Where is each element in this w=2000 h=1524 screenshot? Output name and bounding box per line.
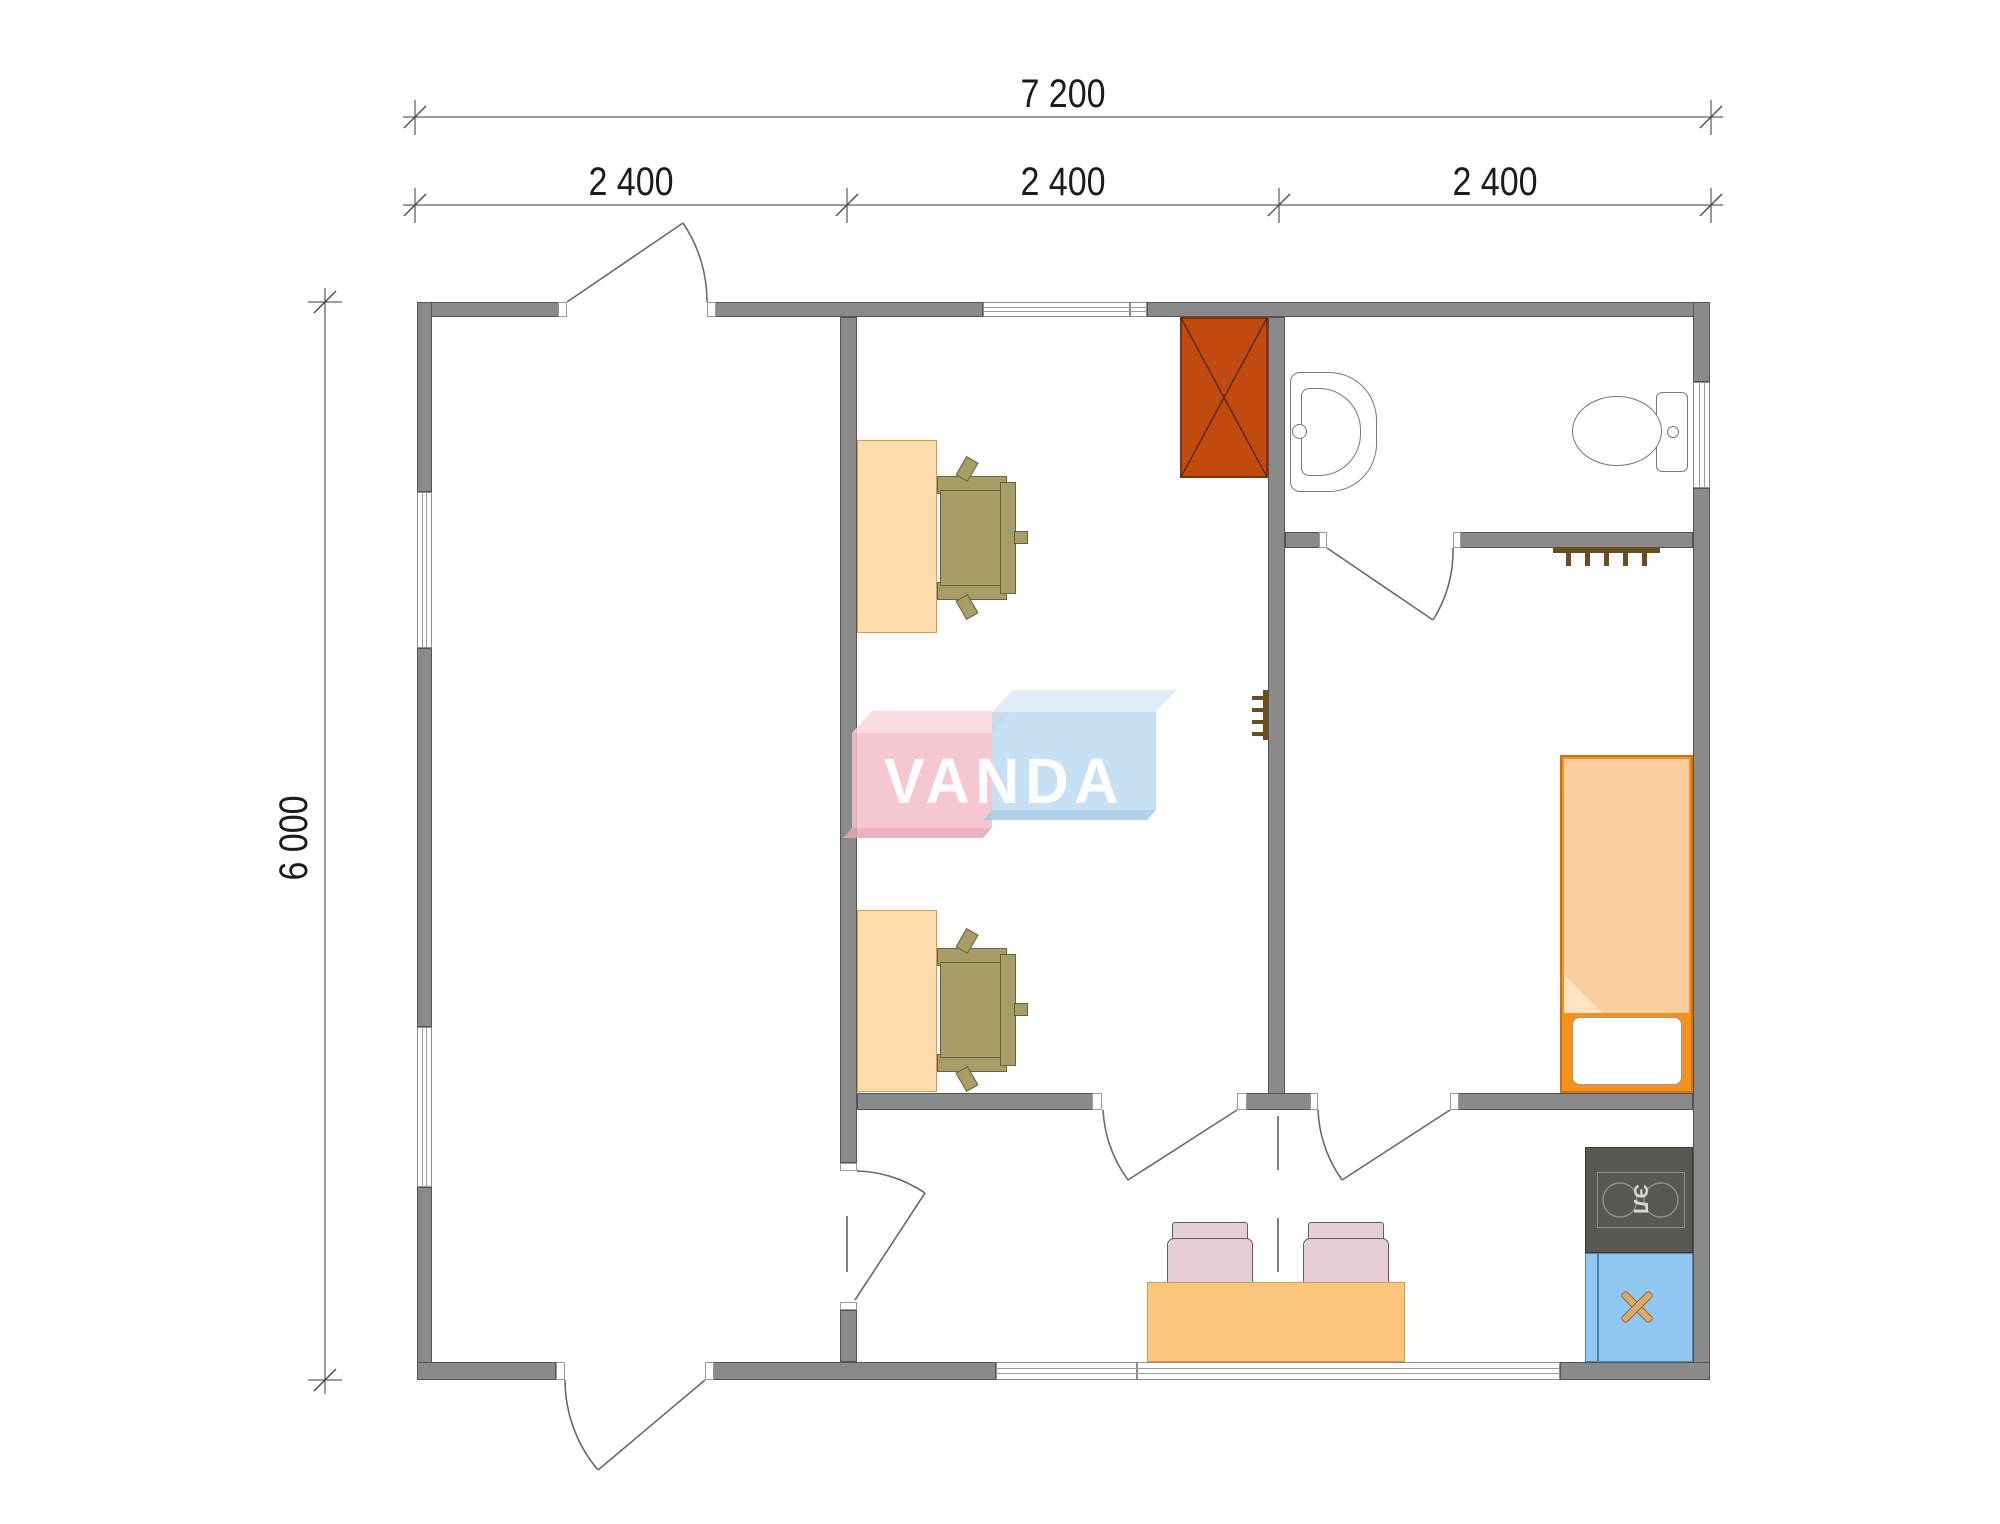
door-arc-entry-bottom (565, 1380, 598, 1470)
mid-wall-left (857, 1093, 1102, 1110)
door-jamb (558, 302, 567, 317)
bedroom-hanger-hook (1642, 553, 1647, 566)
door-arc-hall (857, 1171, 925, 1193)
dimension-label-overall-height: 6 000 (272, 753, 320, 923)
dining-table (1147, 1282, 1405, 1362)
bottom-wall-right (1560, 1362, 1710, 1380)
door-jamb (707, 302, 716, 317)
top-window-end (1130, 302, 1147, 317)
bath-wall-right (1453, 532, 1693, 548)
office-hanger-hook (1252, 720, 1263, 724)
logo-blue-top (992, 690, 1177, 712)
floor-plan-canvas: 7 200 2 400 2 400 2 400 6 000 VANDA ЭЛ (0, 0, 2000, 1524)
door-jamb (840, 1163, 857, 1171)
chair-2-leg (1014, 1003, 1028, 1016)
dining-chair-1-seat (1167, 1238, 1253, 1284)
door-leaf-bathroom (1327, 548, 1433, 620)
desk-2 (857, 910, 937, 1092)
sink-cabinet-divider (1597, 1254, 1599, 1361)
left-wall-top (417, 302, 432, 492)
right-window (1693, 382, 1710, 488)
wardrobe (1180, 317, 1268, 478)
dim-tick (404, 194, 426, 216)
dimension-label-overall-width: 7 200 (978, 72, 1148, 117)
door-leaf-entry-top (567, 223, 683, 302)
office-hanger-hook (1252, 696, 1263, 700)
door-jamb (1450, 1093, 1459, 1110)
door-jamb (705, 1362, 714, 1380)
bedroom-hanger-hook (1623, 553, 1628, 566)
chair-1-leg (1014, 531, 1028, 544)
door-leaf-entry-bottom (598, 1380, 705, 1470)
bed-pillow (1572, 1017, 1682, 1085)
door-jamb (1237, 1093, 1247, 1110)
hall-partition-stub (840, 1310, 857, 1362)
door-leaf-hall (855, 1193, 925, 1300)
bedroom-hanger-hook (1604, 553, 1609, 566)
office-hanger-hook (1252, 732, 1263, 736)
top-wall-right (1147, 302, 1710, 317)
toilet-button (1667, 426, 1679, 438)
dim-tick (1700, 106, 1722, 128)
office-hanger-hook (1252, 708, 1263, 712)
door-jamb (1453, 532, 1461, 548)
door-arc-bedroom (1318, 1110, 1342, 1180)
logo-pink-bottom (843, 828, 992, 838)
bedroom-hanger-hook (1566, 553, 1571, 566)
door-jamb (556, 1362, 565, 1380)
bedroom-partition-wall (1268, 317, 1285, 1110)
desk-1 (857, 440, 937, 633)
bottom-window-left (996, 1362, 1137, 1380)
office-hanger-bar (1263, 690, 1268, 740)
door-jamb (840, 1302, 857, 1310)
right-wall-top (1693, 302, 1710, 382)
dim-tick (314, 291, 336, 313)
top-window (983, 302, 1130, 317)
left-wall-bottom (417, 1187, 432, 1380)
dining-chair-2-seat (1303, 1238, 1389, 1284)
hall-partition-wall (840, 317, 857, 1163)
bottom-window-right (1137, 1362, 1560, 1380)
dim-tick (1700, 194, 1722, 216)
stove-electric-label: ЭЛ (1622, 1178, 1658, 1222)
door-leaf-bedroom (1342, 1110, 1450, 1180)
door-jamb (1310, 1093, 1318, 1110)
door-arc-entry-top (683, 223, 707, 302)
mid-wall-center (1237, 1093, 1318, 1110)
dim-tick (836, 194, 858, 216)
dimension-label-bay-3: 2 400 (1410, 160, 1580, 205)
top-wall-left (417, 302, 567, 317)
bottom-wall-mid (705, 1362, 996, 1380)
toilet-bowl (1572, 396, 1662, 466)
door-jamb (1092, 1093, 1102, 1110)
dimension-label-bay-2: 2 400 (978, 160, 1148, 205)
door-jamb (1319, 532, 1327, 548)
mid-wall-right (1450, 1093, 1693, 1110)
bath-sink-tap (1292, 424, 1307, 439)
left-wall-mid (417, 648, 432, 1027)
watermark-logo-text: VANDA (860, 744, 1149, 818)
dim-tick (314, 1369, 336, 1391)
chair-2-seat (940, 962, 1002, 1058)
dim-tick (1268, 194, 1290, 216)
dim-tick (404, 106, 426, 128)
door-arc-office (1103, 1110, 1128, 1180)
right-wall-main (1693, 488, 1710, 1380)
door-leaf-office (1128, 1110, 1237, 1180)
dimension-label-bay-1: 2 400 (546, 160, 716, 205)
top-wall-mid (707, 302, 983, 317)
door-arc-bathroom (1433, 548, 1453, 620)
left-window-1 (417, 492, 432, 648)
bedroom-hanger-hook (1585, 553, 1590, 566)
bottom-wall-left (417, 1362, 556, 1380)
chair-1-seat (940, 490, 1002, 586)
left-window-2 (417, 1027, 432, 1187)
logo-pink-top (852, 711, 1012, 733)
bed-blanket (1564, 759, 1689, 1013)
